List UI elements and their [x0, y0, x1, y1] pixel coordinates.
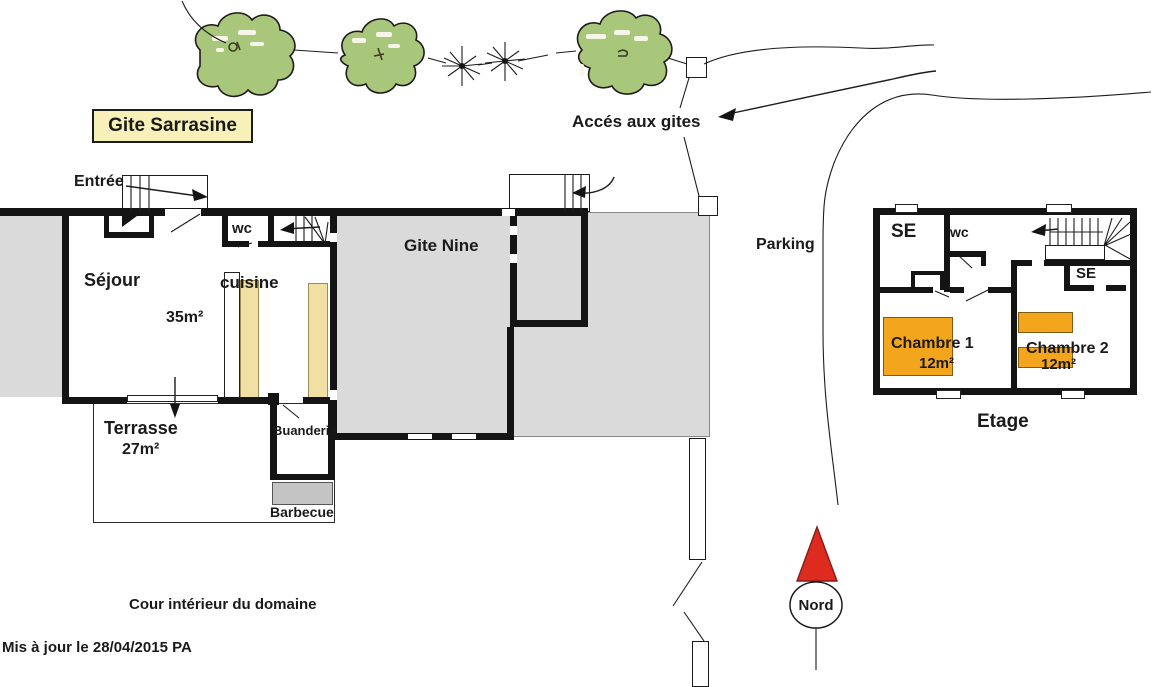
- acces-label: Accés aux gites: [572, 113, 701, 130]
- wc-bottom-wall-b: [258, 241, 332, 247]
- north-arrow-icon: [797, 527, 837, 581]
- gn-inner-bottom-wall: [510, 320, 588, 327]
- wc-label: wc: [232, 221, 252, 236]
- gray-room-right-wall: [62, 216, 69, 398]
- star-bush-1: [442, 46, 482, 86]
- etage-window-top-left: [895, 204, 918, 213]
- sarrasine-stairs: [280, 216, 328, 244]
- gate-box-lower: [698, 196, 718, 216]
- buanderie-bottom-wall: [270, 474, 335, 480]
- terrasse-area-label: 27m²: [122, 442, 159, 458]
- sejour-terrace-window: [127, 395, 218, 402]
- shared-wall-gap-1: [330, 233, 337, 242]
- cuisine-label: cuisine: [220, 274, 279, 291]
- kitchen-counter-2: [308, 283, 328, 398]
- chambre1-label: Chambre 1: [891, 336, 974, 352]
- chambre2-label: Chambre 2: [1026, 341, 1109, 357]
- gn-bottom-window-2: [452, 434, 476, 439]
- gite-nine-label: Gite Nine: [404, 237, 479, 254]
- main-entry-door-gap: [165, 209, 201, 216]
- etage-mid-wall-a: [879, 287, 933, 293]
- gite-nine-top-window-gap: [502, 209, 515, 216]
- access-path-lines: [680, 78, 699, 196]
- title-box-label: Gite Sarrasine: [108, 115, 237, 137]
- etage-bottom-wall: [873, 388, 1137, 395]
- gite-nine-stairs-box: [509, 174, 590, 212]
- entree-label: Entrée: [74, 174, 124, 190]
- gate-diagonals: [673, 562, 704, 641]
- wc-bottom-wall-a: [222, 241, 249, 247]
- etage-wc-stub: [981, 257, 986, 266]
- barbecue-label: Barbecue: [270, 505, 334, 519]
- sejour-label: Séjour: [84, 271, 140, 289]
- sejour-area-label: 35m²: [166, 310, 203, 326]
- gite-nine-top-wall: [335, 208, 588, 216]
- etage-mid-wall-b: [950, 287, 964, 293]
- parking-label: Parking: [756, 237, 815, 253]
- terrasse-label: Terrasse: [104, 419, 178, 437]
- title-box: Gite Sarrasine: [92, 109, 253, 143]
- etage-se2-bottom-a: [1064, 285, 1094, 291]
- etage-landing-door-gap: [1032, 260, 1044, 266]
- sejour-bottom-wall-a: [62, 397, 127, 404]
- cour-label: Cour intérieur du domaine: [129, 597, 317, 612]
- tree-3: [577, 11, 671, 94]
- buanderie-left-wall: [270, 403, 277, 480]
- etage-window-top-right: [1046, 204, 1072, 213]
- chambre2-bed-1: [1018, 312, 1073, 333]
- etage-landing-bottom-wall: [1013, 260, 1131, 266]
- floor-plan-canvas: Gite Sarrasine Entrée Séjour 35m² cuisin…: [0, 0, 1152, 687]
- shared-wall-gap-2: [330, 390, 337, 400]
- gn-inner-right-wall: [581, 216, 588, 327]
- fence-lines: [182, 1, 687, 65]
- gate-post-lower: [692, 641, 709, 687]
- etage-se2-bottom-b: [1106, 285, 1126, 291]
- gn-inner-door-gap-2: [510, 254, 517, 263]
- etage-left-wall: [873, 208, 880, 395]
- chambre1-area-label: 12m²: [919, 356, 954, 371]
- buanderie-right-wall: [328, 403, 335, 480]
- kitchen-counter-1: [240, 280, 259, 398]
- nord-label: Nord: [790, 598, 842, 613]
- gn-bottom-window-1: [408, 434, 432, 439]
- etage-window-bottom-right: [1061, 390, 1085, 399]
- etage-label: Etage: [977, 412, 1029, 431]
- gn-right-lower-wall: [507, 327, 514, 440]
- fireplace-niche: [104, 216, 154, 238]
- sejour-bottom-wall-b: [218, 397, 271, 404]
- buanderie-label: Buanderie: [273, 424, 337, 437]
- etage-right-wall: [1130, 208, 1137, 395]
- barbecue-block: [272, 482, 333, 505]
- gate-box-upper: [686, 57, 707, 78]
- etage-wc-label: wc: [950, 225, 969, 239]
- access-arrow: [718, 71, 936, 121]
- etage-se2-label: SE: [1076, 266, 1096, 281]
- tree-1: [195, 13, 294, 97]
- star-bush-2: [485, 42, 525, 81]
- etage-chambre-divider: [1011, 260, 1017, 393]
- tree-2: [341, 19, 424, 93]
- etage-se1-label: SE: [891, 222, 916, 241]
- etage-stair-landing: [1045, 245, 1105, 260]
- left-gray-room: [0, 216, 62, 397]
- gate-post-upper: [689, 438, 706, 560]
- etage-window-bottom-left: [936, 390, 961, 399]
- gn-inner-door-gap-1: [510, 226, 517, 235]
- updated-label: Mis à jour le 28/04/2015 PA: [2, 640, 192, 655]
- chambre2-area-label: 12m²: [1041, 357, 1076, 372]
